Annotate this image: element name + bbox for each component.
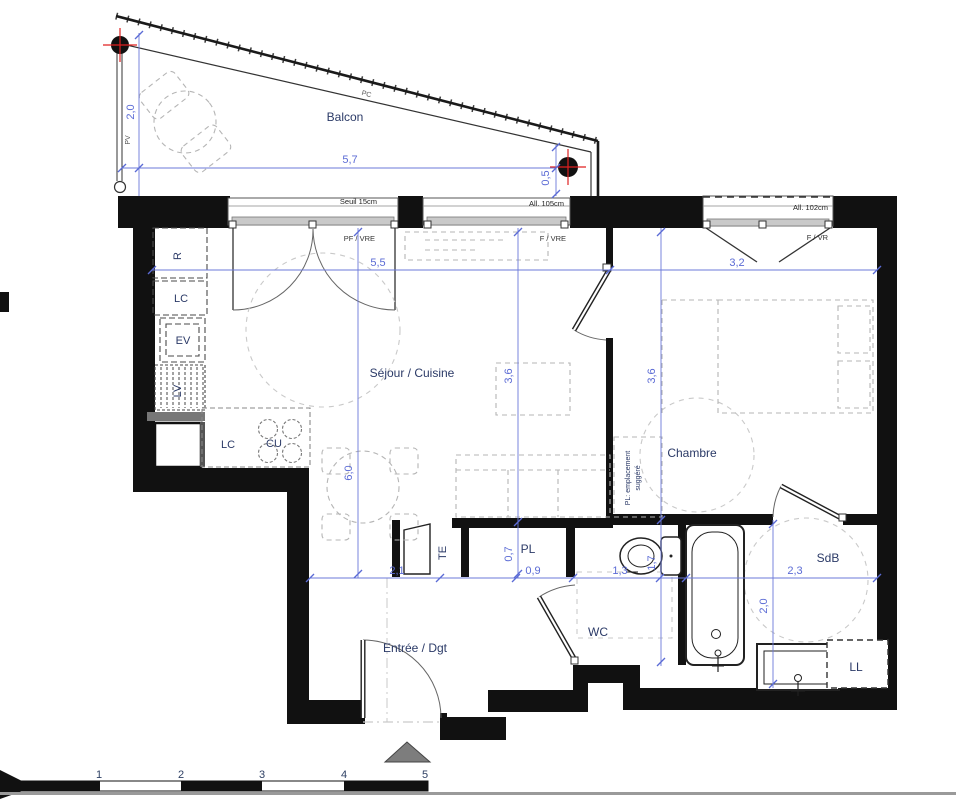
- window2-sill-note: All. 105cm: [529, 199, 564, 208]
- sink-unit-label: EV: [176, 335, 191, 347]
- dishwasher-label: LV: [172, 384, 184, 397]
- fixtures: [620, 525, 888, 696]
- pv-note: PV: [125, 135, 132, 145]
- ground-line: [0, 792, 956, 795]
- dim-living-width: 5,5: [370, 257, 385, 269]
- scale-tick-3: 3: [259, 769, 265, 781]
- dim-balcony-offset: 0,5: [540, 170, 552, 185]
- floor-plan-page: Balcon Séjour / Cuisine Chambre SdB WC E…: [0, 0, 956, 800]
- window3-sill-note: All. 102cm: [793, 203, 828, 212]
- bedroom-label: Chambre: [667, 446, 717, 460]
- washer-label: LL: [849, 660, 863, 674]
- dimension-ticks: [118, 31, 881, 688]
- tall-cabinet-label: LC: [174, 293, 188, 305]
- window1-type-note: PF / VRE: [344, 234, 375, 243]
- bed: [718, 300, 873, 413]
- electrical-closet: [404, 524, 430, 574]
- bathtub: [686, 525, 744, 672]
- bedroom-door: [574, 264, 611, 340]
- dining-table: [327, 451, 399, 523]
- bathroom-door: [773, 486, 846, 521]
- dim-living-depth: 3,6: [503, 368, 515, 383]
- wc-label: WC: [588, 625, 608, 639]
- dim-bathroom-width: 2,3: [787, 565, 802, 577]
- window3-type-note: F / VR: [807, 233, 829, 242]
- balcony-furniture: [130, 64, 240, 181]
- dim-balcony-depth: 2,0: [125, 104, 137, 119]
- dim-bedroom-width: 3,2: [729, 257, 744, 269]
- closet-label: PL: [521, 542, 536, 556]
- dim-closet-depth: 0,7: [503, 546, 515, 561]
- fridge-label: R: [172, 252, 184, 260]
- dim-wc-depth: 1,7: [646, 555, 658, 570]
- cooktop-label: CU: [266, 438, 282, 450]
- scale-bar: 1 2 3 4 5: [0, 769, 956, 795]
- dim-entry-width: 2,1: [389, 565, 404, 577]
- electrical-panel-label: TE: [437, 546, 449, 560]
- scale-tick-4: 4: [341, 769, 347, 781]
- window2-type-note: F / VRE: [540, 234, 566, 243]
- wardrobe-note-line1: PL: emplacement: [625, 451, 632, 506]
- dim-bathroom-depth: 2,0: [758, 598, 770, 613]
- turning-circle-living: [246, 253, 400, 407]
- window1-sill-note: Seuil 15cm: [340, 197, 377, 206]
- pc-note: PC: [361, 90, 372, 99]
- turning-circle-bathroom: [744, 518, 868, 642]
- wc-door: [539, 585, 578, 664]
- sideboard: [405, 232, 548, 260]
- low-cabinet-label: LC: [221, 439, 235, 451]
- living-label: Séjour / Cuisine: [370, 366, 455, 380]
- labels: Balcon Séjour / Cuisine Chambre SdB WC E…: [125, 90, 863, 674]
- wardrobe-note-line2: suggéré: [635, 465, 642, 490]
- dim-balcony-width: 5,7: [342, 154, 357, 166]
- scale-tick-5: 5: [422, 769, 428, 781]
- dim-closet-width: 0,9: [525, 565, 540, 577]
- scale-numbers: 1 2 3 4 5: [96, 769, 428, 781]
- dim-living-length: 6,0: [343, 465, 355, 480]
- scale-tick-2: 2: [178, 769, 184, 781]
- dim-bedroom-depth: 3,6: [646, 368, 658, 383]
- entrance-marker: [385, 742, 430, 762]
- sofa: [456, 455, 610, 517]
- post-marker: [103, 28, 137, 62]
- post-marker: [550, 149, 586, 185]
- balcony-label: Balcon: [327, 110, 364, 124]
- dim-wc-width: 1,3: [612, 565, 627, 577]
- walls: [0, 196, 897, 799]
- bathroom-label: SdB: [817, 551, 840, 565]
- scale-tick-1: 1: [96, 769, 102, 781]
- entry-label: Entrée / Dgt: [383, 641, 448, 655]
- railing-end-marker: [115, 182, 126, 193]
- balcony: [103, 16, 598, 196]
- kitchen: [147, 228, 310, 467]
- floor-plan-drawing: Balcon Séjour / Cuisine Chambre SdB WC E…: [0, 0, 956, 800]
- dimension-lines: [118, 31, 881, 688]
